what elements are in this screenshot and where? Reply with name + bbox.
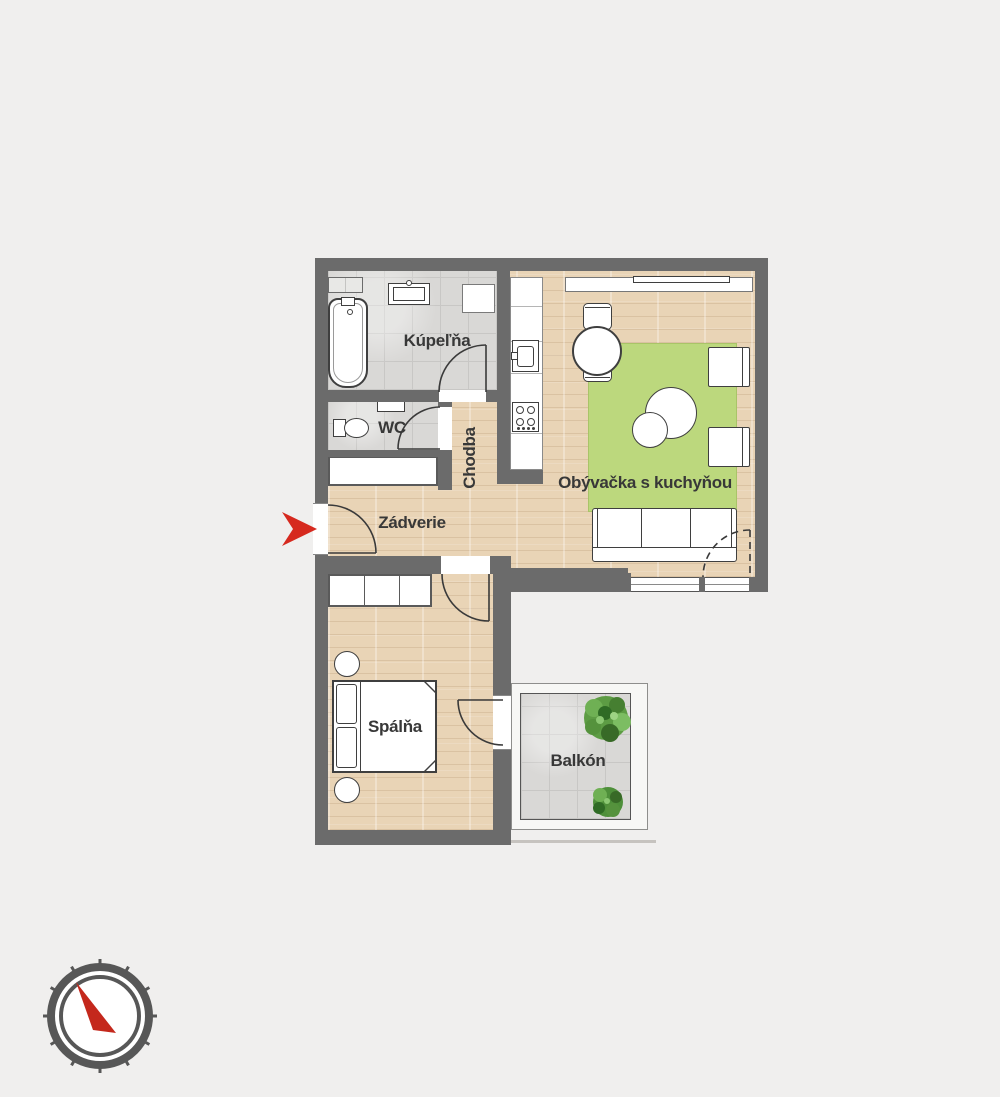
bedroom-door-opening — [441, 556, 490, 574]
bathroom-door-opening — [439, 390, 486, 402]
room-label-spalna: Spálňa — [368, 717, 422, 737]
wall-top — [315, 258, 768, 271]
wall-wc-south — [328, 450, 452, 457]
entrance-arrow-icon — [281, 511, 319, 549]
wall-lower — [493, 568, 628, 592]
balcony-shadow — [508, 840, 656, 843]
bathtub-icon — [328, 298, 368, 388]
wardrobe-icon — [328, 574, 432, 607]
hall-closet — [328, 456, 438, 486]
compass-icon — [40, 956, 160, 1076]
room-label-kupelna: Kúpeľňa — [404, 331, 471, 351]
washbasin-icon — [388, 283, 430, 305]
balcony-door-opening — [493, 695, 511, 750]
room-label-obyvacka: Obývačka s kuchyňou — [558, 473, 732, 493]
window-post — [699, 577, 705, 592]
wall-bedroom-south — [315, 830, 511, 845]
room-label-zadverie: Zádverie — [378, 513, 446, 533]
french-window — [628, 577, 755, 592]
room-label-balkon: Balkón — [551, 751, 606, 771]
toilet-icon — [344, 418, 369, 438]
washing-machine — [462, 284, 495, 313]
stove-icon — [512, 402, 539, 432]
dining-table-icon — [572, 326, 622, 376]
coffee-table-icon — [632, 412, 668, 448]
wall-kitchen-cap — [497, 470, 543, 484]
window-post — [749, 577, 755, 592]
sofa-icon — [592, 508, 737, 562]
tv-icon — [633, 276, 730, 283]
wall-kitchen — [497, 271, 510, 484]
kitchen-sink-icon — [512, 340, 539, 372]
wall-right — [755, 258, 768, 592]
room-label-chodba: Chodba — [460, 427, 480, 488]
bathroom-shelf — [328, 277, 363, 293]
wc-door-opening — [438, 407, 452, 450]
armchair-icon — [708, 427, 750, 467]
nightstand — [334, 777, 360, 803]
armchair-icon — [708, 347, 750, 387]
kitchen-counter — [510, 277, 543, 470]
window-post — [624, 573, 631, 592]
room-label-wc: WC — [378, 418, 406, 438]
nightstand — [334, 651, 360, 677]
floorplan-page: { "palette": { "background": "#f0efee", … — [0, 0, 1000, 1097]
